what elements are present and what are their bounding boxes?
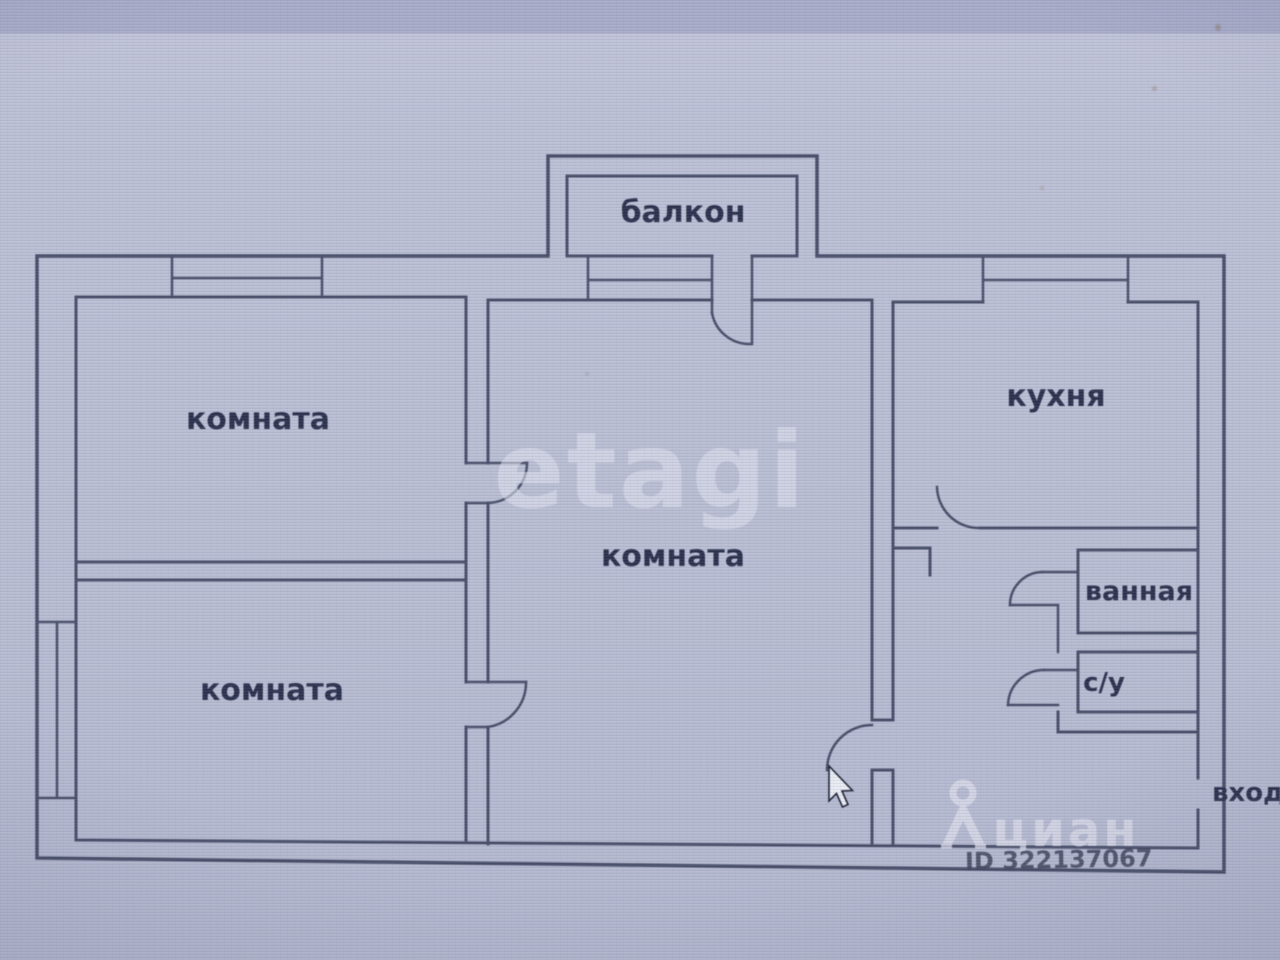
bathroom-label: ванная [1085,576,1193,607]
toilet-label: с/у [1083,668,1125,698]
etagi-watermark: etagi [493,410,806,532]
entrance-label: вход [1212,778,1280,808]
watermarks: etagi циан ID 322137067 [493,410,1152,875]
floor-plan-image: etagi циан ID 322137067 балкон комната к… [0,0,1280,960]
room-bottom-left-label: комната [200,673,344,708]
balcony-label: балкон [621,195,746,230]
listing-photo: etagi циан ID 322137067 балкон комната к… [0,0,1280,960]
room-top-left-label: комната [186,402,330,437]
room-center-label: комната [601,539,745,574]
room-bottom-left-area [76,580,466,840]
listing-id-text: ID 322137067 [965,844,1153,875]
mouse-cursor [829,766,853,807]
cian-pin-icon [941,783,986,846]
door-swing-arcs [488,313,1044,770]
kitchen-label: кухня [1006,379,1105,414]
